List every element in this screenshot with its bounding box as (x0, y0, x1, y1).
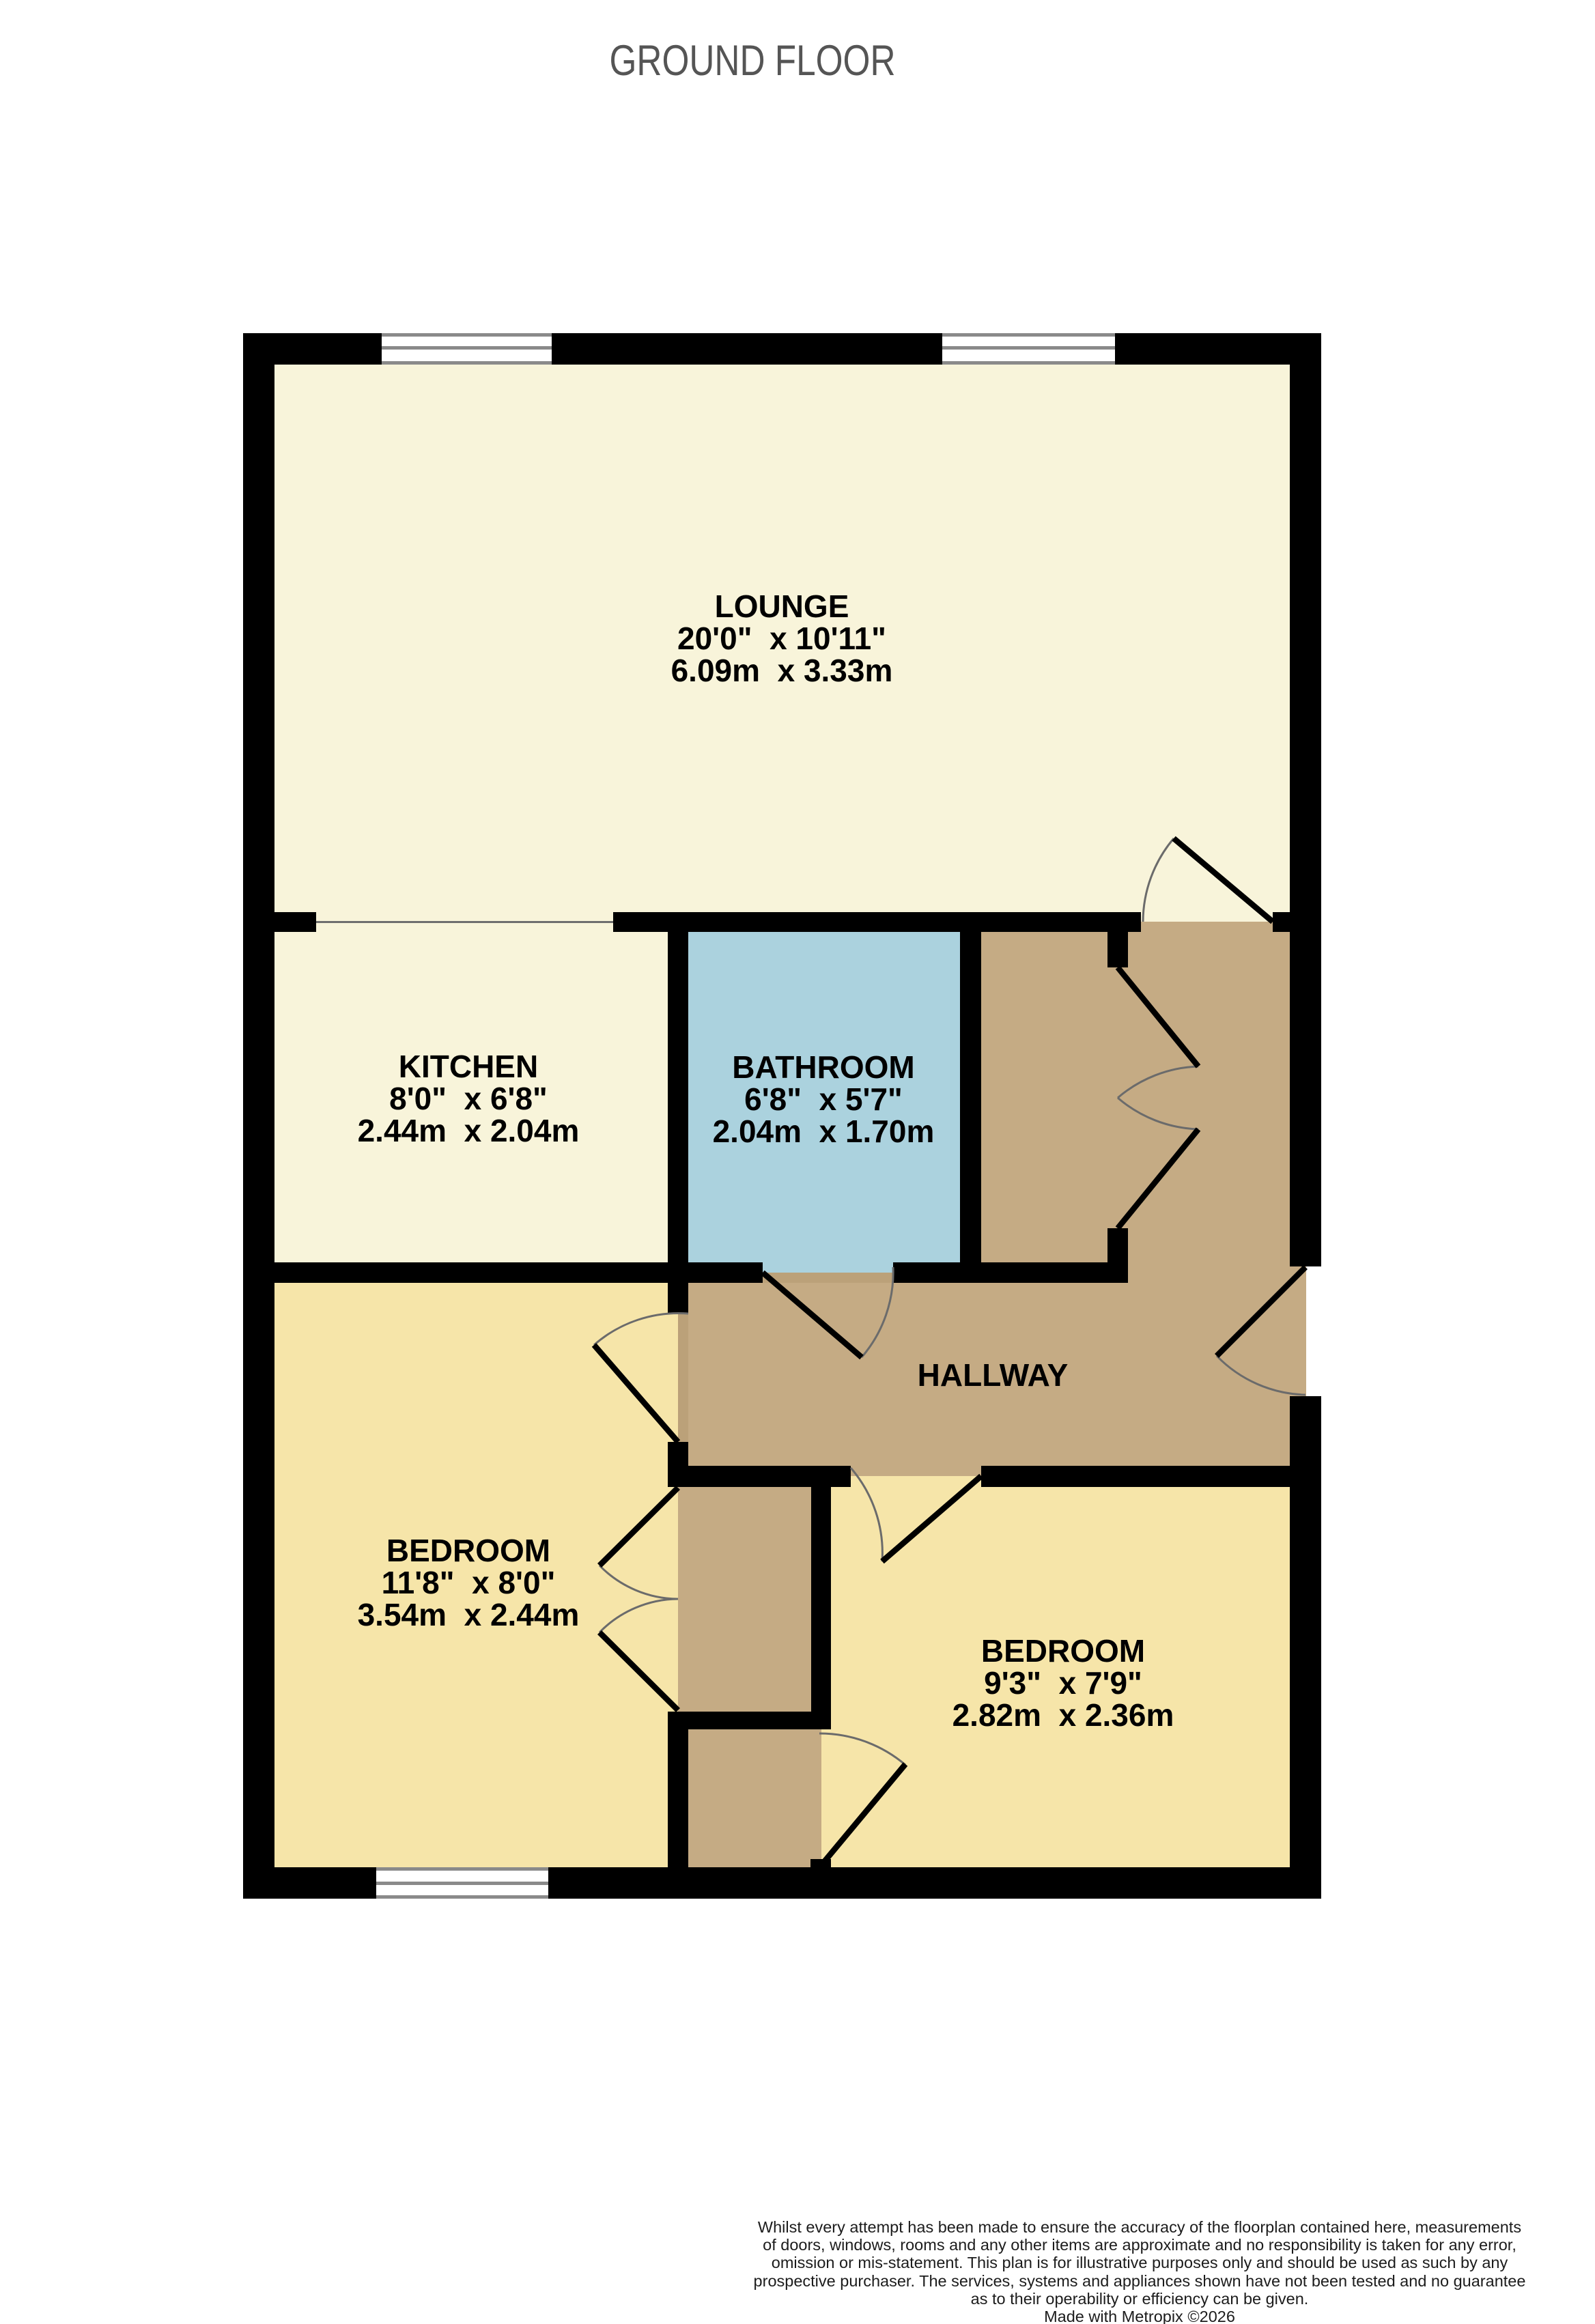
svg-text:Whilst every attempt has been: Whilst every attempt has been made to en… (758, 2218, 1521, 2236)
svg-text:prospective purchaser. The ser: prospective purchaser. The services, sys… (754, 2272, 1526, 2290)
svg-text:2.82m x 2.36m: 2.82m x 2.36m (952, 1697, 1174, 1733)
svg-text:Made with Metropix ©2026: Made with Metropix ©2026 (1044, 2308, 1235, 2324)
svg-text:as to their operability or eff: as to their operability or efficiency ca… (971, 2290, 1309, 2308)
svg-text:20'0" x 10'11": 20'0" x 10'11" (677, 621, 886, 656)
svg-text:BATHROOM: BATHROOM (732, 1049, 914, 1085)
svg-text:HALLWAY: HALLWAY (918, 1357, 1069, 1393)
svg-text:of doors, windows, rooms and a: of doors, windows, rooms and any other i… (763, 2236, 1516, 2254)
svg-text:LOUNGE: LOUNGE (715, 589, 849, 624)
svg-text:6'8" x 5'7": 6'8" x 5'7" (744, 1081, 903, 1117)
svg-text:BEDROOM: BEDROOM (386, 1533, 550, 1568)
svg-text:GROUND FLOOR: GROUND FLOOR (610, 37, 896, 85)
svg-text:8'0" x 6'8": 8'0" x 6'8" (389, 1081, 548, 1116)
svg-text:KITCHEN: KITCHEN (399, 1049, 538, 1084)
svg-text:2.44m x 2.04m: 2.44m x 2.04m (358, 1113, 580, 1148)
svg-text:3.54m x 2.44m: 3.54m x 2.44m (358, 1597, 580, 1632)
svg-text:omission or mis-statement. Thi: omission or mis-statement. This plan is … (772, 2254, 1508, 2271)
svg-text:BEDROOM: BEDROOM (981, 1633, 1145, 1669)
svg-text:9'3" x 7'9": 9'3" x 7'9" (984, 1665, 1142, 1701)
svg-text:6.09m x 3.33m: 6.09m x 3.33m (671, 653, 893, 688)
svg-text:11'8" x 8'0": 11'8" x 8'0" (382, 1565, 556, 1600)
svg-text:2.04m x 1.70m: 2.04m x 1.70m (713, 1114, 935, 1149)
